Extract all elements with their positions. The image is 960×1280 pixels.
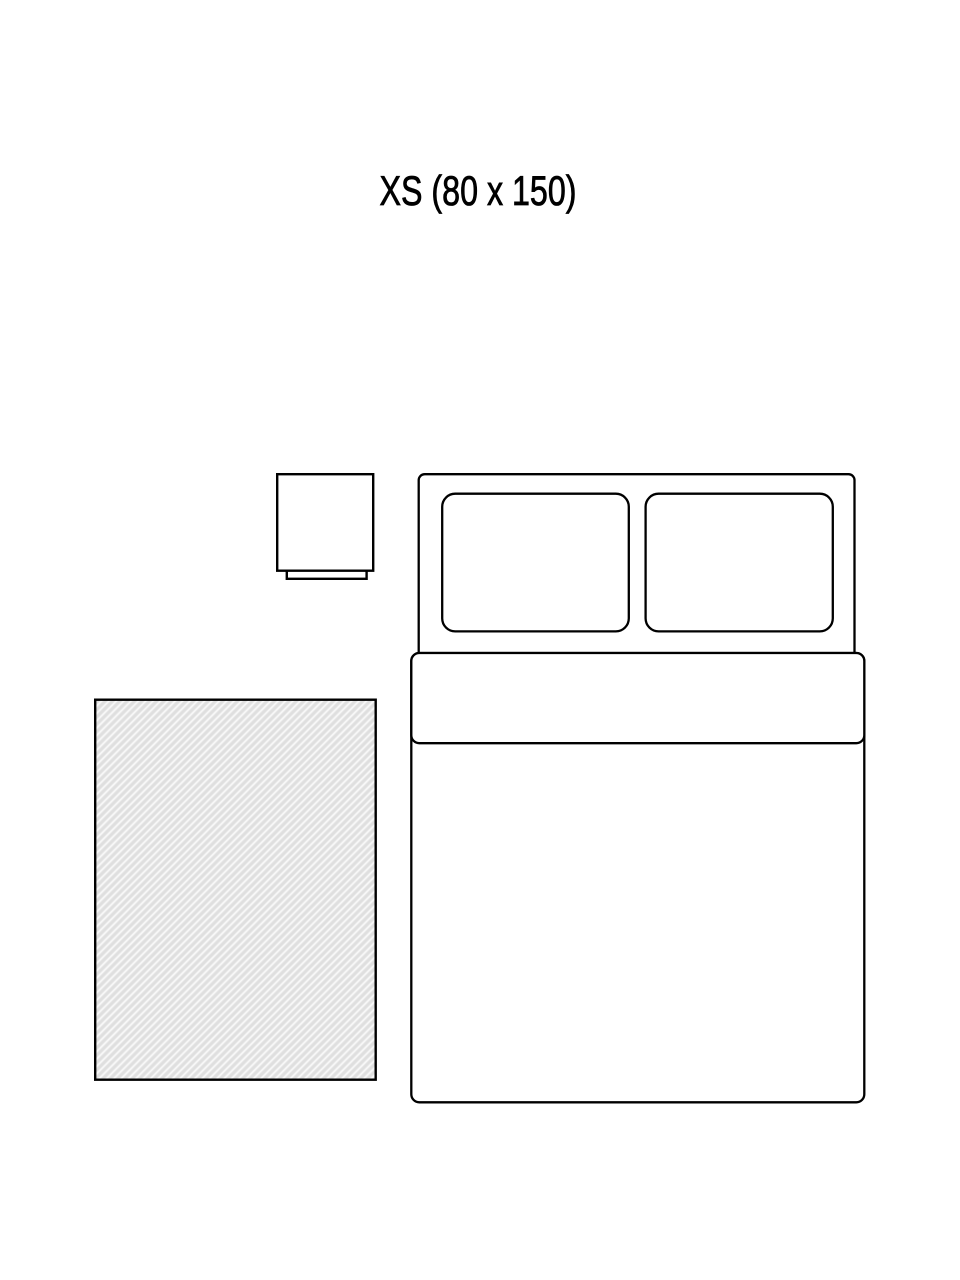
svg-text:XS (80 x 150): XS (80 x 150) [380, 167, 577, 214]
